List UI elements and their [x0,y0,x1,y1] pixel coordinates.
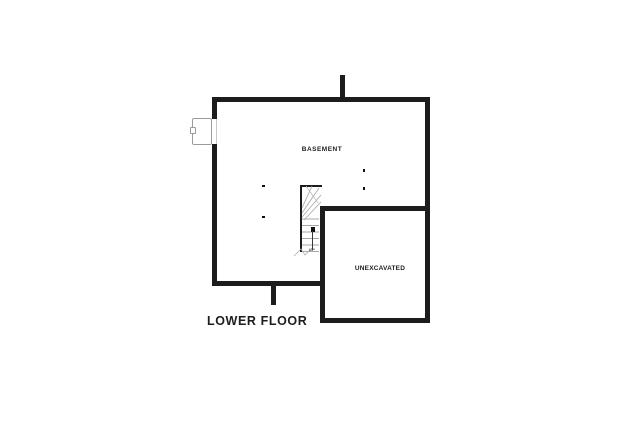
unexcavated-top-wall [320,206,430,211]
window-latch [190,127,196,134]
unexcavated-bottom-wall [320,318,430,323]
chimney-stub-top [340,75,345,99]
basement-left-wall-upper [212,97,217,119]
support-post [363,169,366,172]
basement-label: BASEMENT [282,146,362,153]
unexcavated-left-wall [320,206,325,323]
support-post [262,216,265,219]
basement-top-wall [212,97,430,102]
wall-stub-bottom [271,284,276,305]
window-inner-line [216,119,217,144]
floor-title: LOWER FLOOR [207,314,307,328]
stair-top-wall [300,185,322,187]
up-label: UP [305,247,319,252]
basement-bottom-wall [212,281,324,286]
floorplan-canvas: UP BASEMENT UNEXCAVATED LOWER FLOOR [0,0,640,426]
unexcavated-label: UNEXCAVATED [340,265,420,272]
support-post [262,185,265,188]
basement-left-wall-lower [212,144,217,286]
support-post [363,187,366,190]
